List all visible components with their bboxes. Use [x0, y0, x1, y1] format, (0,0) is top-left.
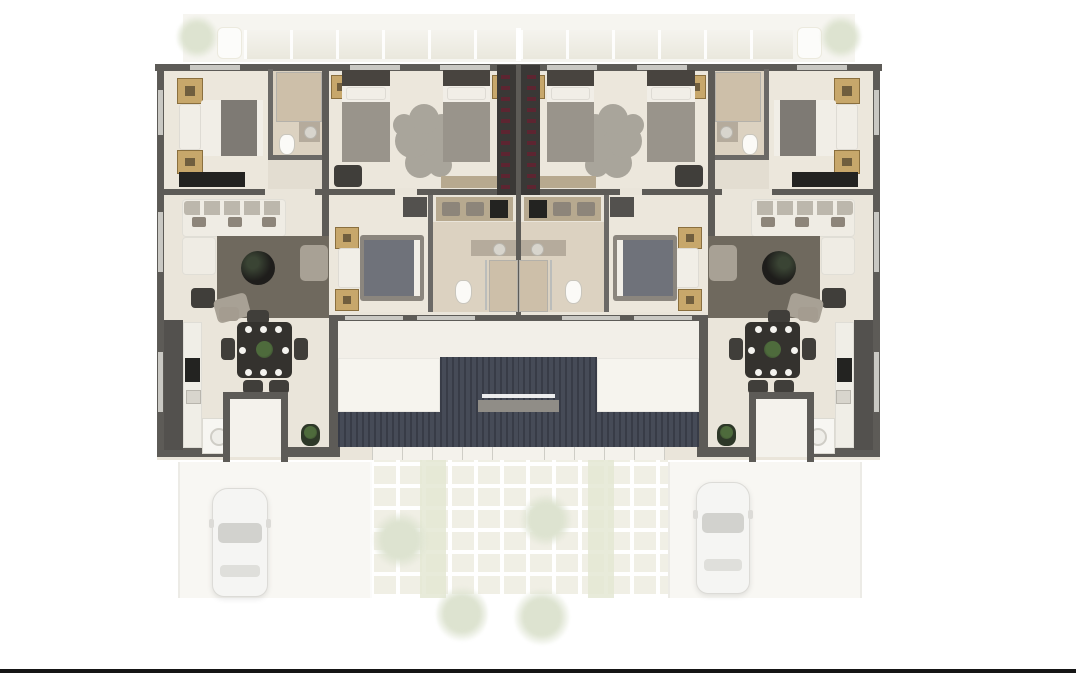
master-bed-blanket — [221, 100, 257, 156]
wall-terrace-left — [699, 315, 708, 457]
sofa-throw-pillow-b — [795, 217, 809, 227]
master-bed-blanket — [780, 100, 816, 156]
sofa-cushions — [753, 201, 853, 215]
twin-bench — [540, 176, 596, 188]
middle-side-cabinet — [403, 197, 427, 217]
dining-plates — [785, 326, 792, 333]
entry-steps — [518, 447, 665, 460]
ensuite-toilet — [742, 134, 758, 155]
twin-bed-a-pillow — [651, 87, 691, 100]
kitchen-counter — [835, 322, 854, 448]
car-right-mirror-l — [693, 510, 698, 519]
kitchen-tall-units — [854, 320, 873, 450]
french-door-b — [417, 316, 475, 320]
dressing-dark-unit — [529, 200, 547, 218]
twin-bed-b-blanket — [443, 102, 490, 162]
twin-bed-b-headboard — [547, 70, 594, 86]
middle-bed — [613, 235, 677, 301]
dining-chair-left — [221, 338, 235, 360]
garden-tree-c — [436, 585, 488, 643]
middle-nightstand-top — [335, 227, 359, 249]
rear-shrub-right — [820, 15, 862, 59]
bathroom-shower — [489, 260, 518, 312]
middle-nightstand-top — [678, 227, 702, 249]
ensuite-sink — [720, 126, 733, 139]
window-left-living — [158, 212, 163, 272]
porch-post-right — [281, 392, 288, 463]
kitchen-sink — [836, 390, 851, 404]
twin-bench — [441, 176, 497, 188]
unit-right — [518, 62, 882, 465]
dining-plates — [245, 326, 252, 333]
shower-glass — [550, 260, 552, 310]
twin-bed-b — [547, 70, 594, 162]
window-top-master — [190, 65, 240, 70]
porch-floor — [756, 399, 807, 457]
wall-rowdivider-b — [315, 189, 395, 195]
master-tv-console — [792, 172, 858, 187]
porch-floor — [230, 399, 281, 457]
ensuite-shower — [715, 72, 761, 122]
car-right-mirror-r — [748, 510, 753, 519]
sofa-throw-pillow-b — [228, 217, 242, 227]
bottom-border-line — [0, 669, 1076, 673]
middle-side-cabinet — [610, 197, 634, 217]
terrace-white-ledge — [597, 358, 699, 412]
rear-yard-center-divider — [516, 28, 521, 61]
armchair-right — [709, 245, 737, 281]
middle-bed-pillows — [675, 248, 699, 288]
dining-stool — [219, 307, 239, 321]
middle-bed-pillows — [338, 248, 362, 288]
porch-beam-top — [749, 392, 814, 399]
coffee-table — [241, 251, 275, 285]
sofa-chaise-section — [182, 237, 216, 275]
master-tv-console — [179, 172, 245, 187]
bathroom-toilet — [455, 280, 472, 304]
wall-master-bath — [764, 69, 769, 155]
twin-bedroom-rug — [622, 114, 644, 136]
porch-plant-pot — [301, 424, 320, 446]
sofa-back-section — [751, 199, 855, 237]
bathroom-sink — [531, 243, 544, 256]
sofa-cushions — [184, 201, 284, 215]
wall-rowdivider-a — [772, 189, 873, 195]
living-side-table — [822, 288, 846, 308]
master-bed — [201, 100, 263, 156]
dressing-dark-unit — [490, 200, 508, 218]
stone-wall-ledge-line — [482, 394, 519, 398]
ensuite-sink — [304, 126, 317, 139]
master-nightstand-top — [834, 78, 860, 104]
car-left-mirror-l — [209, 519, 214, 528]
twin-bed-a — [647, 70, 695, 162]
garden-tree-a — [372, 512, 428, 568]
living-side-table — [191, 288, 215, 308]
window-left-kitchen — [158, 352, 163, 412]
dining-chair-left — [802, 338, 816, 360]
wall-master-bath — [268, 69, 273, 155]
coffee-table — [762, 251, 796, 285]
middle-nightstand-bottom — [678, 289, 702, 311]
rear-yard-bench-right — [797, 27, 822, 59]
unit-left — [155, 62, 519, 465]
entry-steps — [372, 447, 519, 460]
wall-rowdivider-b — [642, 189, 722, 195]
car-right — [696, 482, 750, 594]
twin-bed-a-headboard — [342, 70, 390, 86]
shower-glass — [485, 260, 487, 310]
armchair-right — [300, 245, 328, 281]
car-right-windshield — [702, 513, 744, 533]
porch-post-left — [807, 392, 814, 463]
window-left-master — [158, 90, 163, 135]
kitchen-cooktop — [837, 358, 852, 382]
porch-post-left — [223, 392, 230, 463]
twin-bed-a-blanket — [342, 102, 390, 162]
window-left-master — [874, 90, 879, 135]
twin-desk — [334, 165, 362, 187]
rear-shrub-left — [176, 15, 218, 59]
window-left-kitchen — [874, 352, 879, 412]
twin-bed-a — [342, 70, 390, 162]
bathroom-toilet — [565, 280, 582, 304]
dressing-cabinets — [436, 197, 513, 221]
ensuite-shower — [276, 72, 322, 122]
middle-bed-blanket — [623, 240, 673, 296]
twin-bed-b-blanket — [547, 102, 594, 162]
dressing-cushion-b — [553, 202, 571, 216]
rear-yard-bench-left — [217, 27, 242, 59]
floor-plan-render — [0, 0, 1076, 674]
dining-chair-right — [294, 338, 308, 360]
middle-bed — [360, 235, 424, 301]
twin-bed-b-pillow — [447, 87, 486, 100]
hallway-floor — [715, 160, 769, 189]
wardrobe-closet — [521, 65, 540, 195]
kitchen-sink — [186, 390, 201, 404]
garden-tree-b — [520, 494, 572, 546]
wall-rowdivider-a — [164, 189, 265, 195]
kitchen-counter — [183, 322, 202, 448]
wardrobe-clothes — [501, 71, 510, 189]
dressing-cabinets — [524, 197, 601, 221]
french-door-a — [634, 316, 692, 320]
lawn-strip-b — [588, 460, 614, 598]
master-bed — [774, 100, 836, 156]
porch-post-right — [749, 392, 756, 463]
twin-bedroom-rug — [393, 114, 415, 136]
twin-bed-a-pillow — [346, 87, 386, 100]
master-nightstand-bottom — [177, 150, 203, 174]
car-left-mirror-r — [266, 519, 271, 528]
window-top-master — [797, 65, 847, 70]
sofa-throw-pillow-c — [761, 217, 775, 227]
middle-nightstand-bottom — [335, 289, 359, 311]
wall-bedroom3-hall — [604, 195, 609, 312]
kitchen-tall-units — [164, 320, 183, 450]
master-bed-fold — [774, 100, 780, 156]
dressing-cushion-a — [577, 202, 595, 216]
porch-plant — [304, 426, 317, 439]
twin-bed-a-headboard — [647, 70, 695, 86]
french-door-b — [562, 316, 620, 320]
porch-plant — [720, 426, 733, 439]
twin-bed-b — [443, 70, 490, 162]
car-left-windshield — [218, 523, 262, 543]
sofa-throw-pillow-c — [262, 217, 276, 227]
stone-planter-band — [338, 412, 519, 447]
sofa-chaise-section — [821, 237, 855, 275]
sofa-throw-pillow-a — [192, 217, 206, 227]
wall-bath-bottom — [268, 155, 327, 160]
master-pillows — [179, 104, 201, 150]
wall-terrace-left — [329, 315, 338, 457]
bathroom-sink — [493, 243, 506, 256]
wardrobe-closet — [497, 65, 516, 195]
car-left-rear-window — [220, 565, 260, 577]
master-nightstand-top — [177, 78, 203, 104]
driveway-left — [178, 462, 372, 598]
master-pillows — [836, 104, 858, 150]
ensuite-toilet — [279, 134, 295, 155]
bathroom-shower — [519, 260, 548, 312]
hallway-floor — [268, 160, 322, 189]
master-nightstand-bottom — [834, 150, 860, 174]
twin-bed-b-pillow — [551, 87, 590, 100]
car-left — [212, 488, 268, 597]
sofa-throw-pillow-a — [831, 217, 845, 227]
twin-desk — [675, 165, 703, 187]
dressing-cushion-b — [466, 202, 484, 216]
french-door-a — [345, 316, 403, 320]
middle-bed-blanket — [364, 240, 414, 296]
wall-bath-bottom — [710, 155, 769, 160]
master-bed-fold — [257, 100, 263, 156]
porch-plant-pot — [717, 424, 736, 446]
middle-bed-fold — [414, 240, 420, 296]
sofa-back-section — [182, 199, 286, 237]
twin-bed-b-headboard — [443, 70, 490, 86]
stone-planter-band — [518, 412, 699, 447]
kitchen-cooktop — [185, 358, 200, 382]
twin-bed-a-blanket — [647, 102, 695, 162]
dressing-cushion-a — [442, 202, 460, 216]
floor-plan — [155, 62, 882, 465]
garden-tree-d — [514, 588, 570, 646]
dining-centerpiece-plant — [256, 341, 273, 358]
stone-wall-ledge-line — [518, 394, 555, 398]
middle-bed-fold — [617, 240, 623, 296]
dining-centerpiece-plant — [764, 341, 781, 358]
porch-beam-top — [223, 392, 288, 399]
terrace-white-ledge — [338, 358, 440, 412]
wall-bedroom3-hall — [428, 195, 433, 312]
car-right-rear-window — [704, 559, 742, 571]
wardrobe-clothes — [527, 71, 536, 189]
dining-chair-right — [729, 338, 743, 360]
dining-stool — [798, 307, 818, 321]
window-left-living — [874, 212, 879, 272]
